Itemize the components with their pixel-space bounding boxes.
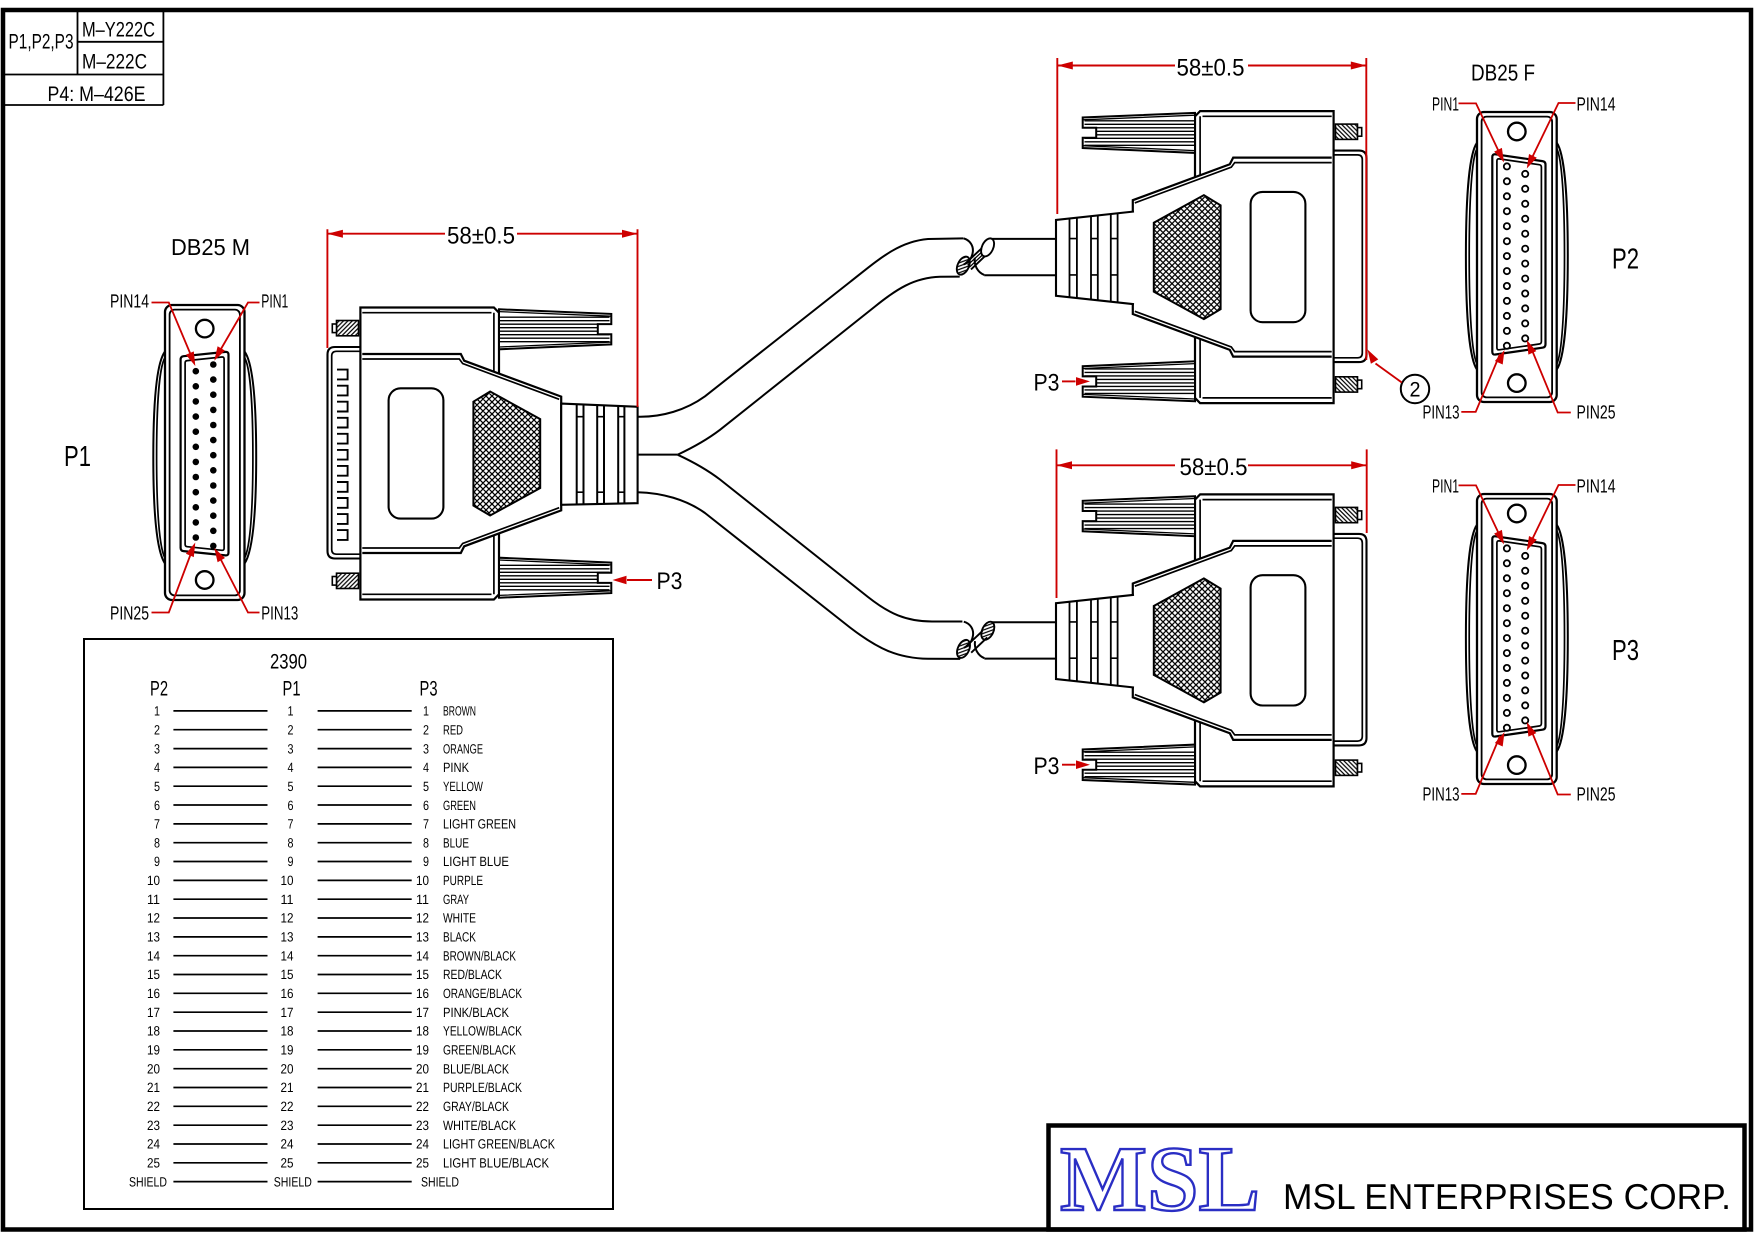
svg-text:8: 8 <box>154 835 160 850</box>
svg-text:PIN14: PIN14 <box>110 292 149 313</box>
svg-text:23: 23 <box>281 1118 294 1133</box>
svg-text:RED: RED <box>443 722 463 737</box>
svg-text:RED/BLACK: RED/BLACK <box>443 967 502 982</box>
svg-text:8: 8 <box>288 835 294 850</box>
svg-text:16: 16 <box>281 986 294 1001</box>
svg-text:25: 25 <box>281 1156 294 1171</box>
svg-text:21: 21 <box>416 1080 429 1095</box>
svg-text:11: 11 <box>281 892 294 907</box>
svg-text:PIN25: PIN25 <box>110 604 149 625</box>
svg-text:9: 9 <box>423 854 429 869</box>
svg-text:ORANGE/BLACK: ORANGE/BLACK <box>443 986 522 1001</box>
svg-text:PIN1: PIN1 <box>261 292 288 313</box>
svg-text:7: 7 <box>288 817 294 832</box>
svg-text:16: 16 <box>147 986 160 1001</box>
svg-text:19: 19 <box>281 1043 294 1058</box>
svg-text:3: 3 <box>288 741 294 756</box>
svg-text:58±0.5: 58±0.5 <box>447 223 515 250</box>
svg-text:9: 9 <box>288 854 294 869</box>
svg-text:1: 1 <box>288 704 294 719</box>
svg-text:LIGHT GREEN: LIGHT GREEN <box>443 817 516 832</box>
svg-text:PIN1: PIN1 <box>1432 94 1459 115</box>
svg-text:DB25 M: DB25 M <box>171 234 250 260</box>
svg-text:6: 6 <box>154 798 160 813</box>
svg-text:23: 23 <box>416 1118 429 1133</box>
svg-text:LIGHT BLUE/BLACK: LIGHT BLUE/BLACK <box>443 1156 549 1171</box>
svg-text:4: 4 <box>423 760 429 775</box>
svg-text:3: 3 <box>423 741 429 756</box>
svg-text:20: 20 <box>281 1061 294 1076</box>
svg-text:PIN14: PIN14 <box>1577 476 1616 497</box>
svg-text:GREEN: GREEN <box>443 798 476 813</box>
svg-text:10: 10 <box>281 873 294 888</box>
svg-text:13: 13 <box>281 930 294 945</box>
svg-text:P1: P1 <box>283 678 301 701</box>
svg-text:17: 17 <box>147 1005 160 1020</box>
svg-text:M–222C: M–222C <box>82 51 147 74</box>
svg-text:1: 1 <box>423 704 429 719</box>
svg-text:15: 15 <box>281 967 294 982</box>
svg-text:7: 7 <box>154 817 160 832</box>
svg-text:WHITE: WHITE <box>443 911 476 926</box>
svg-text:3: 3 <box>154 741 160 756</box>
svg-text:2: 2 <box>1410 379 1421 402</box>
svg-text:P3: P3 <box>1034 370 1060 397</box>
svg-text:P1,P2,P3: P1,P2,P3 <box>9 31 74 54</box>
svg-text:PINK/BLACK: PINK/BLACK <box>443 1005 509 1020</box>
svg-text:11: 11 <box>416 892 429 907</box>
svg-text:10: 10 <box>147 873 160 888</box>
svg-text:BROWN: BROWN <box>443 704 476 719</box>
svg-text:17: 17 <box>281 1005 294 1020</box>
svg-text:5: 5 <box>154 779 160 794</box>
svg-text:GRAY/BLACK: GRAY/BLACK <box>443 1099 509 1114</box>
svg-text:13: 13 <box>147 930 160 945</box>
svg-text:BROWN/BLACK: BROWN/BLACK <box>443 948 516 963</box>
svg-text:P2: P2 <box>150 678 168 701</box>
svg-text:7: 7 <box>423 817 429 832</box>
svg-text:PURPLE/BLACK: PURPLE/BLACK <box>443 1080 522 1095</box>
svg-text:4: 4 <box>154 760 160 775</box>
svg-text:10: 10 <box>416 873 429 888</box>
svg-text:MSL: MSL <box>1060 1128 1260 1231</box>
svg-text:13: 13 <box>416 930 429 945</box>
svg-text:YELLOW/BLACK: YELLOW/BLACK <box>443 1024 522 1039</box>
svg-text:58±0.5: 58±0.5 <box>1180 454 1248 481</box>
svg-text:PIN25: PIN25 <box>1577 785 1616 806</box>
svg-text:2: 2 <box>423 722 429 737</box>
svg-text:5: 5 <box>423 779 429 794</box>
svg-text:2: 2 <box>154 722 160 737</box>
svg-text:P3: P3 <box>1612 635 1639 667</box>
svg-text:PIN25: PIN25 <box>1577 403 1616 424</box>
svg-text:PIN13: PIN13 <box>1423 403 1460 424</box>
svg-text:16: 16 <box>416 986 429 1001</box>
svg-text:2: 2 <box>288 722 294 737</box>
svg-text:18: 18 <box>281 1024 294 1039</box>
svg-text:P4: M–426E: P4: M–426E <box>48 83 146 106</box>
svg-text:21: 21 <box>147 1080 160 1095</box>
svg-text:P3: P3 <box>420 678 438 701</box>
svg-text:18: 18 <box>147 1024 160 1039</box>
svg-text:14: 14 <box>416 948 429 963</box>
svg-text:SHIELD: SHIELD <box>274 1174 312 1189</box>
svg-text:GREEN/BLACK: GREEN/BLACK <box>443 1043 516 1058</box>
svg-text:9: 9 <box>154 854 160 869</box>
svg-text:58±0.5: 58±0.5 <box>1177 54 1245 81</box>
svg-text:14: 14 <box>147 948 160 963</box>
svg-text:18: 18 <box>416 1024 429 1039</box>
svg-text:6: 6 <box>288 798 294 813</box>
svg-text:17: 17 <box>416 1005 429 1020</box>
svg-text:1: 1 <box>154 704 160 719</box>
svg-text:LIGHT GREEN/BLACK: LIGHT GREEN/BLACK <box>443 1137 555 1152</box>
svg-text:24: 24 <box>281 1137 294 1152</box>
svg-text:WHITE/BLACK: WHITE/BLACK <box>443 1118 516 1133</box>
svg-text:22: 22 <box>416 1099 429 1114</box>
svg-text:12: 12 <box>281 911 294 926</box>
svg-text:12: 12 <box>147 911 160 926</box>
svg-text:PIN1: PIN1 <box>1432 476 1459 497</box>
svg-text:MSL ENTERPRISES CORP.: MSL ENTERPRISES CORP. <box>1283 1176 1731 1217</box>
svg-text:23: 23 <box>147 1118 160 1133</box>
svg-text:YELLOW: YELLOW <box>443 779 483 794</box>
svg-text:2390: 2390 <box>270 651 307 674</box>
svg-text:P3: P3 <box>1034 753 1060 780</box>
svg-text:20: 20 <box>147 1061 160 1076</box>
svg-text:PURPLE: PURPLE <box>443 873 483 888</box>
svg-text:25: 25 <box>416 1156 429 1171</box>
svg-text:M–Y222C: M–Y222C <box>82 19 155 42</box>
svg-text:24: 24 <box>147 1137 160 1152</box>
svg-text:19: 19 <box>147 1043 160 1058</box>
svg-text:P3: P3 <box>657 568 683 595</box>
svg-text:15: 15 <box>147 967 160 982</box>
svg-text:4: 4 <box>288 760 294 775</box>
svg-text:21: 21 <box>281 1080 294 1095</box>
svg-text:SHIELD: SHIELD <box>129 1174 167 1189</box>
svg-text:15: 15 <box>416 967 429 982</box>
svg-text:8: 8 <box>423 835 429 850</box>
svg-text:22: 22 <box>147 1099 160 1114</box>
svg-text:14: 14 <box>281 948 294 963</box>
svg-text:PIN13: PIN13 <box>261 604 298 625</box>
svg-text:25: 25 <box>147 1156 160 1171</box>
svg-text:ORANGE: ORANGE <box>443 741 483 756</box>
svg-text:22: 22 <box>281 1099 294 1114</box>
svg-text:6: 6 <box>423 798 429 813</box>
svg-text:PINK: PINK <box>443 760 469 775</box>
svg-text:LIGHT BLUE: LIGHT BLUE <box>443 854 509 869</box>
svg-text:GRAY: GRAY <box>443 892 469 907</box>
svg-text:P1: P1 <box>64 441 91 473</box>
svg-text:P2: P2 <box>1612 244 1639 276</box>
svg-text:DB25 F: DB25 F <box>1471 60 1535 86</box>
svg-text:BLUE/BLACK: BLUE/BLACK <box>443 1061 509 1076</box>
svg-text:PIN14: PIN14 <box>1577 94 1616 115</box>
svg-text:24: 24 <box>416 1137 429 1152</box>
svg-text:BLACK: BLACK <box>443 930 476 945</box>
svg-text:19: 19 <box>416 1043 429 1058</box>
svg-text:12: 12 <box>416 911 429 926</box>
svg-text:BLUE: BLUE <box>443 835 469 850</box>
svg-text:20: 20 <box>416 1061 429 1076</box>
svg-text:5: 5 <box>288 779 294 794</box>
svg-text:11: 11 <box>147 892 160 907</box>
svg-text:PIN13: PIN13 <box>1423 785 1460 806</box>
svg-text:SHIELD: SHIELD <box>421 1174 459 1189</box>
